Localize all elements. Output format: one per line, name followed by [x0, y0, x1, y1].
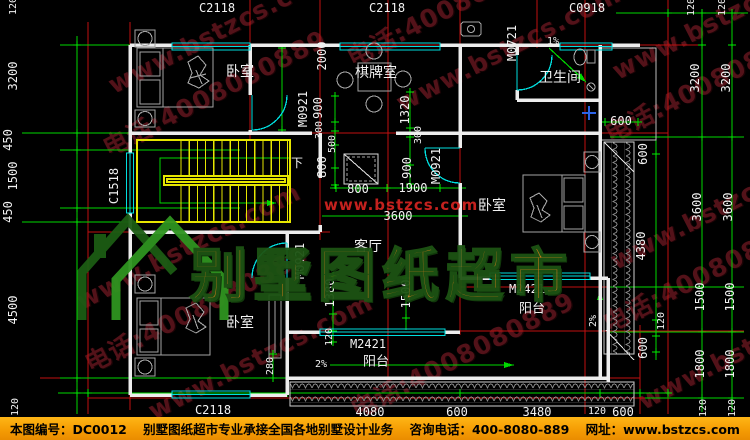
dim: 450 — [2, 129, 14, 151]
dim: 120 — [687, 0, 697, 16]
dim: 900 — [312, 97, 324, 119]
dim: 120 — [9, 0, 19, 15]
watermark-brand: 别墅图纸超市 — [190, 230, 574, 312]
dim: 2000 — [316, 42, 328, 71]
dim: 120 — [728, 399, 738, 417]
dim: 120 — [699, 399, 709, 417]
floor-plan-canvas: www.bstzcs.com电话:4008080889电话:4008080889… — [0, 0, 750, 440]
dim: 120 — [718, 0, 728, 16]
slope: 1% — [547, 37, 559, 47]
website-url: 网址：www.bstzcs.com — [586, 419, 740, 438]
dim: 3200 — [689, 64, 701, 93]
dim: 1800 — [694, 350, 706, 379]
dim: 1500 — [694, 283, 706, 312]
door-code: M0921 — [430, 148, 442, 184]
sheet-number: 本图编号：DC0012 — [10, 419, 127, 438]
dim: 300 — [414, 126, 424, 144]
service-slogan: 别墅图纸超市专业承接全国各地别墅设计业务 — [143, 419, 393, 438]
dim: 1500 — [7, 162, 19, 191]
watermark-url: www.bstzcs.com — [324, 196, 478, 214]
room-label: 棋牌室 — [355, 66, 397, 80]
dim: 1320 — [399, 96, 411, 125]
dim: 800 — [316, 156, 328, 178]
dim: 4500 — [7, 296, 19, 325]
room-label: 阳台 — [363, 356, 389, 369]
stair-direction: 下 — [291, 157, 303, 169]
dim: 900 — [401, 157, 413, 179]
slope: 2% — [315, 360, 327, 370]
window-code: C0918 — [569, 2, 605, 14]
window-code: C2118 — [199, 2, 235, 14]
dim: 280 — [266, 357, 276, 375]
dim: 3200 — [7, 62, 19, 91]
dim: 500 — [328, 135, 338, 153]
dim: 3200 — [720, 64, 732, 93]
brand-watermark: www.bstzcs.com 别墅图纸超市 — [72, 192, 678, 340]
window-code: C2118 — [195, 404, 231, 416]
dim: 450 — [2, 201, 14, 223]
dim: 300 — [315, 121, 325, 139]
dim: 600 — [637, 337, 649, 359]
consult-phone: 咨询电话：400-8080-889 — [409, 419, 569, 438]
door-code: M0721 — [506, 25, 518, 61]
dim: 1800 — [724, 350, 736, 379]
dim: 600 — [637, 143, 649, 165]
room-label: 卧室 — [226, 65, 254, 79]
dim: 3600 — [722, 193, 734, 222]
room-label: 卫生间 — [539, 71, 581, 85]
door-code: M0921 — [297, 91, 309, 127]
dim: 1500 — [724, 283, 736, 312]
dim: 3600 — [691, 193, 703, 222]
footer-bar: 本图编号：DC0012 别墅图纸超市专业承接全国各地别墅设计业务 咨询电话：40… — [0, 417, 750, 440]
window-code: C2118 — [369, 2, 405, 14]
dim: 600 — [610, 115, 632, 127]
dim: 120 — [588, 407, 606, 417]
dim: 120 — [11, 398, 21, 416]
